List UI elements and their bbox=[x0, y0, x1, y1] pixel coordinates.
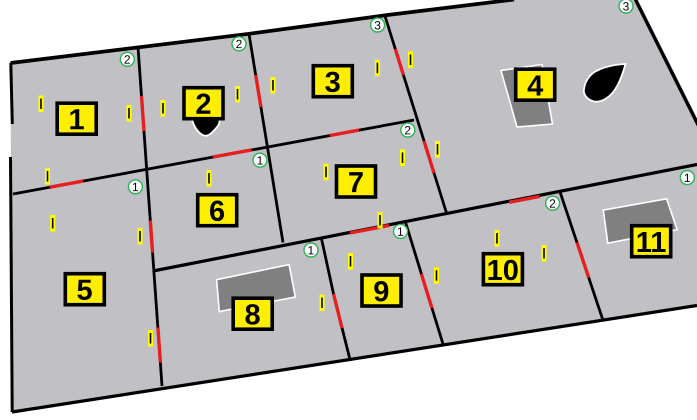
svg-text:3: 3 bbox=[623, 0, 630, 14]
svg-text:2: 2 bbox=[549, 197, 556, 211]
svg-text:1: 1 bbox=[132, 180, 139, 194]
svg-text:3: 3 bbox=[325, 67, 341, 99]
svg-text:6: 6 bbox=[209, 196, 225, 228]
svg-text:10: 10 bbox=[487, 255, 519, 287]
svg-text:9: 9 bbox=[373, 276, 389, 308]
svg-text:2: 2 bbox=[124, 53, 131, 67]
svg-text:1: 1 bbox=[397, 225, 404, 239]
svg-text:7: 7 bbox=[348, 167, 364, 199]
svg-text:4: 4 bbox=[527, 70, 543, 102]
svg-text:11: 11 bbox=[636, 227, 667, 259]
svg-text:1: 1 bbox=[684, 171, 691, 185]
svg-text:3: 3 bbox=[374, 18, 381, 32]
svg-text:2: 2 bbox=[195, 89, 211, 121]
svg-text:8: 8 bbox=[244, 299, 260, 331]
svg-text:5: 5 bbox=[77, 275, 93, 307]
svg-text:1: 1 bbox=[308, 243, 315, 257]
svg-text:2: 2 bbox=[404, 123, 411, 137]
svg-text:1: 1 bbox=[257, 154, 264, 168]
svg-text:1: 1 bbox=[69, 104, 85, 136]
svg-text:2: 2 bbox=[236, 37, 243, 51]
